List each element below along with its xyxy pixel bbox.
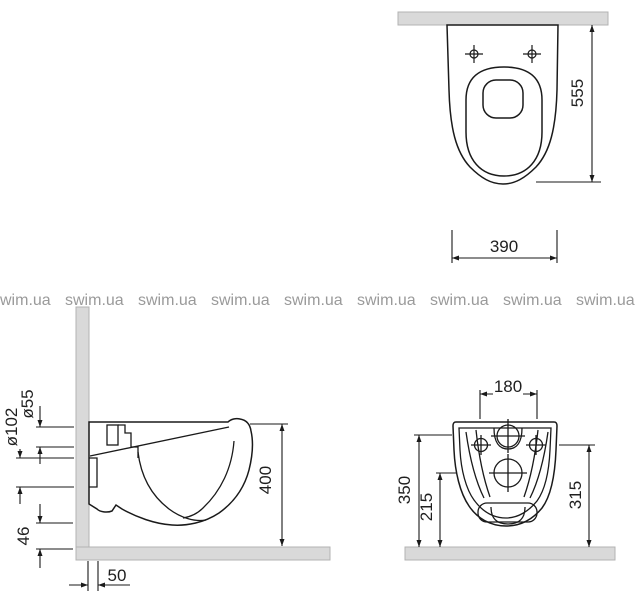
dimension-555: 555 <box>536 25 601 182</box>
seat-opening-outline <box>466 67 542 176</box>
watermark-text: swim.ua <box>576 292 635 309</box>
dimension-46: 46 <box>14 504 73 568</box>
dimension-label-inlet-center-height: 350 <box>395 476 414 504</box>
bolt-hole-right-rear-icon <box>526 435 546 455</box>
dimension-inlet-diameter: ø55 <box>18 389 74 464</box>
watermark-text: swim.ua <box>430 292 489 309</box>
watermark-text: swim.ua <box>65 292 124 309</box>
dimension-315: 315 <box>559 445 595 547</box>
dimension-label-bolt-spacing: 180 <box>494 377 522 396</box>
dimension-50: 50 <box>69 561 130 591</box>
dimension-400: 400 <box>250 424 288 546</box>
watermark-text: swim.ua <box>138 292 197 309</box>
watermark-row: swim.ua swim.ua swim.ua swim.ua swim.ua … <box>0 292 635 309</box>
dimension-180: 180 <box>480 377 537 419</box>
inner-bowl-curve-back <box>138 452 206 521</box>
dimension-label-height: 400 <box>256 466 275 494</box>
toilet-dimension-drawing: swim.ua swim.ua swim.ua swim.ua swim.ua … <box>0 0 640 600</box>
drain-circle-icon <box>489 454 527 492</box>
wall-section-side-view <box>76 307 89 560</box>
wall-section-top-view <box>398 12 608 25</box>
dimension-drain-diameter: ø102 <box>2 408 74 504</box>
dimension-label-seat-width: 390 <box>490 237 518 256</box>
dimension-215: 215 <box>417 473 456 547</box>
watermark-text: swim.ua <box>284 292 343 309</box>
rear-view: 180 350 215 315 <box>395 377 615 560</box>
dimension-label-drain-center-height: 215 <box>417 493 436 521</box>
floor-section-side-view <box>76 547 330 560</box>
dimension-label-depth: 555 <box>568 79 587 107</box>
dimension-390: 390 <box>452 230 557 263</box>
water-spot-outline <box>483 80 523 118</box>
watermark-text: swim.ua <box>211 292 270 309</box>
dimension-label-bottom-clearance: 46 <box>14 527 33 546</box>
flush-inlet-circle-icon <box>491 419 525 453</box>
flush-inlet-outline <box>107 425 118 445</box>
watermark-text: swim.ua <box>503 292 562 309</box>
bolt-hole-left-rear-icon <box>471 435 491 455</box>
dimension-350: 350 <box>395 435 452 547</box>
top-view: 555 390 <box>398 12 608 263</box>
drain-outlet-stub <box>89 458 97 487</box>
bolt-hole-left-icon <box>465 45 483 63</box>
floor-section-rear-view <box>405 547 615 560</box>
bowl-outline-rear <box>453 422 557 526</box>
watermark-text: swim.ua <box>357 292 416 309</box>
rim-slope-line <box>90 427 229 456</box>
bowl-channel-left <box>466 430 490 498</box>
side-view: ø55 ø102 46 400 <box>2 307 330 591</box>
technical-drawing-page: swim.ua swim.ua swim.ua swim.ua swim.ua … <box>0 0 640 600</box>
dimension-label-wall-offset: 50 <box>108 566 127 585</box>
dimension-label-drain-diameter: ø102 <box>2 408 21 447</box>
dimension-label-bolt-center-height: 315 <box>566 481 585 509</box>
watermark-text: swim.ua <box>0 292 51 309</box>
bolt-hole-right-icon <box>523 45 541 63</box>
cistern-step-detail <box>118 425 138 458</box>
